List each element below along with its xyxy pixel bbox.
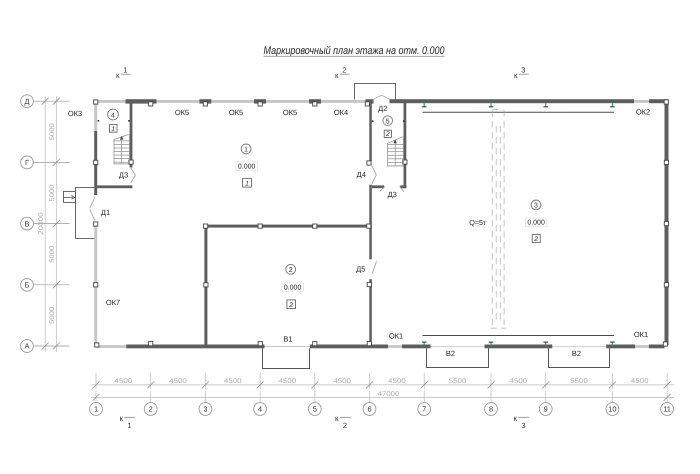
svg-text:В2: В2 bbox=[572, 349, 581, 358]
svg-text:1: 1 bbox=[111, 126, 115, 133]
svg-text:5000: 5000 bbox=[49, 184, 56, 201]
svg-text:А: А bbox=[25, 342, 30, 351]
svg-text:6: 6 bbox=[367, 405, 371, 414]
svg-text:2: 2 bbox=[149, 405, 153, 414]
svg-text:4: 4 bbox=[111, 112, 115, 119]
svg-text:1: 1 bbox=[94, 405, 98, 414]
svg-text:В1: В1 bbox=[283, 335, 292, 344]
svg-text:2: 2 bbox=[342, 66, 346, 75]
svg-text:ОК5: ОК5 bbox=[283, 108, 297, 117]
svg-text:Д4: Д4 bbox=[357, 170, 366, 179]
svg-text:4500: 4500 bbox=[333, 378, 351, 385]
svg-text:В: В bbox=[25, 219, 30, 228]
svg-text:2: 2 bbox=[533, 236, 538, 243]
svg-text:Маркировочный план этажа на от: Маркировочный план этажа на отм. 0.000 bbox=[264, 45, 446, 57]
svg-text:5: 5 bbox=[386, 118, 390, 125]
svg-text:ОК1: ОК1 bbox=[634, 330, 648, 339]
svg-text:2: 2 bbox=[288, 302, 293, 309]
svg-text:Q=5т: Q=5т bbox=[469, 218, 487, 227]
svg-text:к: к bbox=[335, 71, 339, 80]
svg-text:4500: 4500 bbox=[115, 378, 133, 385]
svg-text:ОК5: ОК5 bbox=[229, 108, 243, 117]
svg-text:47000: 47000 bbox=[378, 391, 400, 398]
svg-text:5500: 5500 bbox=[449, 378, 467, 385]
svg-text:2: 2 bbox=[385, 131, 390, 138]
svg-text:4500: 4500 bbox=[169, 378, 187, 385]
svg-text:ОК1: ОК1 bbox=[389, 332, 403, 341]
svg-text:20000: 20000 bbox=[38, 212, 45, 235]
svg-text:к: к bbox=[514, 71, 518, 80]
svg-text:к: к bbox=[116, 71, 120, 80]
svg-text:4500: 4500 bbox=[388, 378, 406, 385]
svg-text:5000: 5000 bbox=[49, 245, 56, 262]
svg-text:2: 2 bbox=[289, 267, 293, 274]
svg-text:Д: Д bbox=[24, 97, 29, 106]
svg-text:В2: В2 bbox=[446, 349, 455, 358]
svg-text:0.000: 0.000 bbox=[284, 284, 302, 291]
svg-text:8: 8 bbox=[489, 405, 493, 414]
svg-text:5500: 5500 bbox=[570, 378, 588, 385]
svg-text:Г: Г bbox=[25, 158, 29, 167]
svg-text:9: 9 bbox=[544, 405, 548, 414]
svg-text:ОК7: ОК7 bbox=[106, 298, 120, 307]
svg-text:Д3: Д3 bbox=[119, 170, 128, 179]
svg-text:1: 1 bbox=[127, 421, 131, 430]
svg-text:4500: 4500 bbox=[631, 378, 649, 385]
svg-text:0.000: 0.000 bbox=[527, 220, 545, 227]
svg-text:3: 3 bbox=[521, 421, 525, 430]
svg-text:1: 1 bbox=[244, 147, 248, 154]
svg-text:3: 3 bbox=[521, 66, 525, 75]
svg-text:к: к bbox=[513, 414, 517, 423]
svg-text:1: 1 bbox=[245, 180, 249, 187]
svg-text:0.000: 0.000 bbox=[238, 164, 256, 171]
svg-text:4500: 4500 bbox=[279, 378, 297, 385]
svg-text:к: к bbox=[335, 414, 339, 423]
svg-text:ОК4: ОК4 bbox=[334, 108, 348, 117]
svg-text:2: 2 bbox=[343, 421, 347, 430]
svg-text:ОК5: ОК5 bbox=[175, 108, 189, 117]
svg-text:5: 5 bbox=[313, 405, 317, 414]
svg-text:Д2: Д2 bbox=[378, 104, 387, 113]
svg-text:5000: 5000 bbox=[49, 307, 56, 324]
svg-text:4: 4 bbox=[258, 405, 262, 414]
svg-text:Д5: Д5 bbox=[356, 264, 365, 273]
svg-text:3: 3 bbox=[534, 203, 538, 210]
svg-text:к: к bbox=[119, 414, 123, 423]
svg-text:11: 11 bbox=[663, 405, 671, 414]
svg-text:4500: 4500 bbox=[510, 378, 528, 385]
svg-text:Д3: Д3 bbox=[388, 190, 397, 199]
svg-text:ОК3: ОК3 bbox=[68, 109, 82, 118]
svg-text:1: 1 bbox=[123, 66, 127, 75]
svg-text:4500: 4500 bbox=[224, 378, 242, 385]
svg-text:5000: 5000 bbox=[49, 123, 56, 140]
svg-text:ОК2: ОК2 bbox=[636, 107, 650, 116]
svg-text:7: 7 bbox=[422, 405, 426, 414]
svg-text:10: 10 bbox=[608, 405, 616, 414]
svg-text:Д1: Д1 bbox=[101, 208, 110, 217]
svg-text:Б: Б bbox=[25, 281, 30, 290]
svg-text:3: 3 bbox=[203, 405, 207, 414]
